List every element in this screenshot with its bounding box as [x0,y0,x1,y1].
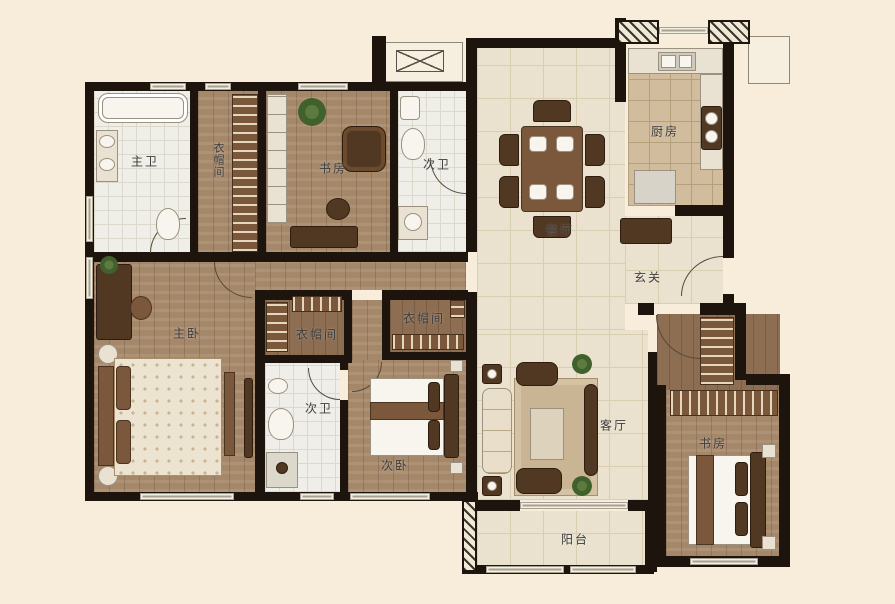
window [570,566,636,573]
dining-chair [585,134,605,166]
wardrobe [232,94,258,252]
sink-icon [99,158,115,171]
dining-chair [499,176,519,208]
wall [258,90,266,253]
foyer-cabinet [620,218,672,244]
balcony-door [520,502,628,509]
sink-icon [268,378,288,394]
headboard [750,452,766,548]
toilet-icon [401,128,425,160]
dining-chair [499,134,519,166]
wardrobe [292,296,342,312]
window [205,83,231,90]
toilet-icon [268,408,294,440]
window [350,493,430,500]
room-label-second-bedroom: 次卧 [381,457,409,474]
bed-runner [696,455,714,545]
window [486,566,564,573]
bedroom-hallway [255,262,466,290]
wall [735,314,746,380]
wall [466,82,477,252]
wall [258,355,352,363]
window [298,83,348,90]
burner [705,112,718,125]
armchair [516,468,562,494]
chair [130,296,152,320]
wall [344,300,352,358]
room-label-foyer: 玄关 [634,269,662,286]
table-decor [487,481,497,491]
sink-basin [679,55,692,68]
wardrobe [450,300,465,318]
room-label-living: 客厅 [600,417,628,434]
wall [648,352,657,500]
sink-icon [400,96,420,120]
wall [746,374,790,385]
sink-icon [99,135,115,148]
fridge-icon [634,170,676,204]
window [690,558,758,565]
plant-icon [572,476,592,496]
nightstand [450,462,463,474]
wardrobe [392,334,464,350]
window [659,27,708,34]
plant-icon [572,354,592,374]
nightstand [450,360,463,372]
wardrobe [266,302,288,352]
wall [390,90,398,253]
wall [340,363,348,370]
room-label-closet-left: 衣帽间 [296,326,338,343]
place-setting [556,136,574,152]
wall [645,500,657,572]
desk-chair [326,198,350,220]
table-decor [487,369,497,379]
wall [779,385,790,565]
place-setting [529,184,547,200]
tv-cabinet [244,378,253,458]
pillow [428,382,440,412]
bathtub [98,93,188,123]
dining-chair [533,100,571,122]
sofa [482,388,512,474]
window [86,196,93,242]
dresser-desk [96,264,132,340]
mid-hall [352,300,382,363]
wall [85,82,475,91]
shear-wall [462,500,477,572]
bookshelf [267,94,287,224]
bed-bench [224,372,235,456]
floor-plan: 主卫 衣帽间 书房 次卫 餐厅 厨房 玄关 主卧 衣帽间 衣帽间 次卫 次卧 客… [0,0,895,604]
room-label-closet-corridor: 衣帽间 [210,142,226,178]
pillow [116,420,131,464]
wall [477,500,520,511]
wall [382,300,390,355]
coffee-table [530,408,564,460]
dining-chair [585,176,605,208]
plant-icon [100,256,118,274]
place-setting [556,184,574,200]
sink-basin [661,55,676,68]
flue-pier [617,20,659,44]
wall [255,290,265,492]
window [300,493,334,500]
pillow [735,502,748,536]
window [86,257,93,299]
pillow [428,420,440,450]
wardrobe [670,390,778,416]
armchair [516,362,558,386]
window [140,493,234,500]
toilet-icon [156,208,180,240]
wall [382,290,468,300]
wall [723,208,734,258]
room-label-study-top: 书房 [319,160,347,177]
wall [657,385,666,565]
desk [290,226,358,248]
room-label-kitchen: 厨房 [651,123,679,140]
wall [723,40,734,208]
plant-icon [298,98,326,126]
nightstand [762,444,776,458]
room-label-bath-top: 次卫 [423,156,451,173]
burner [705,130,718,143]
wall [85,252,468,262]
wall [190,90,198,253]
armchair [342,126,386,172]
room-label-master-bedroom: 主卧 [173,325,201,342]
wall [340,400,348,492]
window [150,83,186,90]
pillow [116,366,131,410]
room-label-study-bottom: 书房 [699,435,727,452]
place-setting [529,136,547,152]
wardrobe [700,317,734,385]
nightstand [762,536,776,550]
tv-console [584,384,598,476]
equipment-box-icon [396,50,444,72]
pillow [735,462,748,496]
wall [466,38,626,48]
room-label-balcony: 阳台 [561,531,589,548]
side-platform [748,36,790,84]
flue-pier [708,20,750,44]
wall [372,36,386,84]
room-label-dining: 餐厅 [546,222,574,239]
washer-drum [404,213,422,231]
room-label-master-bath: 主卫 [131,153,159,170]
wall [382,352,468,360]
shower-head [276,462,288,474]
wall [638,303,654,315]
headboard [444,374,459,458]
headboard [98,366,114,466]
room-label-bath-bottom: 次卫 [305,400,333,417]
room-label-closet-right: 衣帽间 [403,310,445,327]
wall [466,292,477,500]
